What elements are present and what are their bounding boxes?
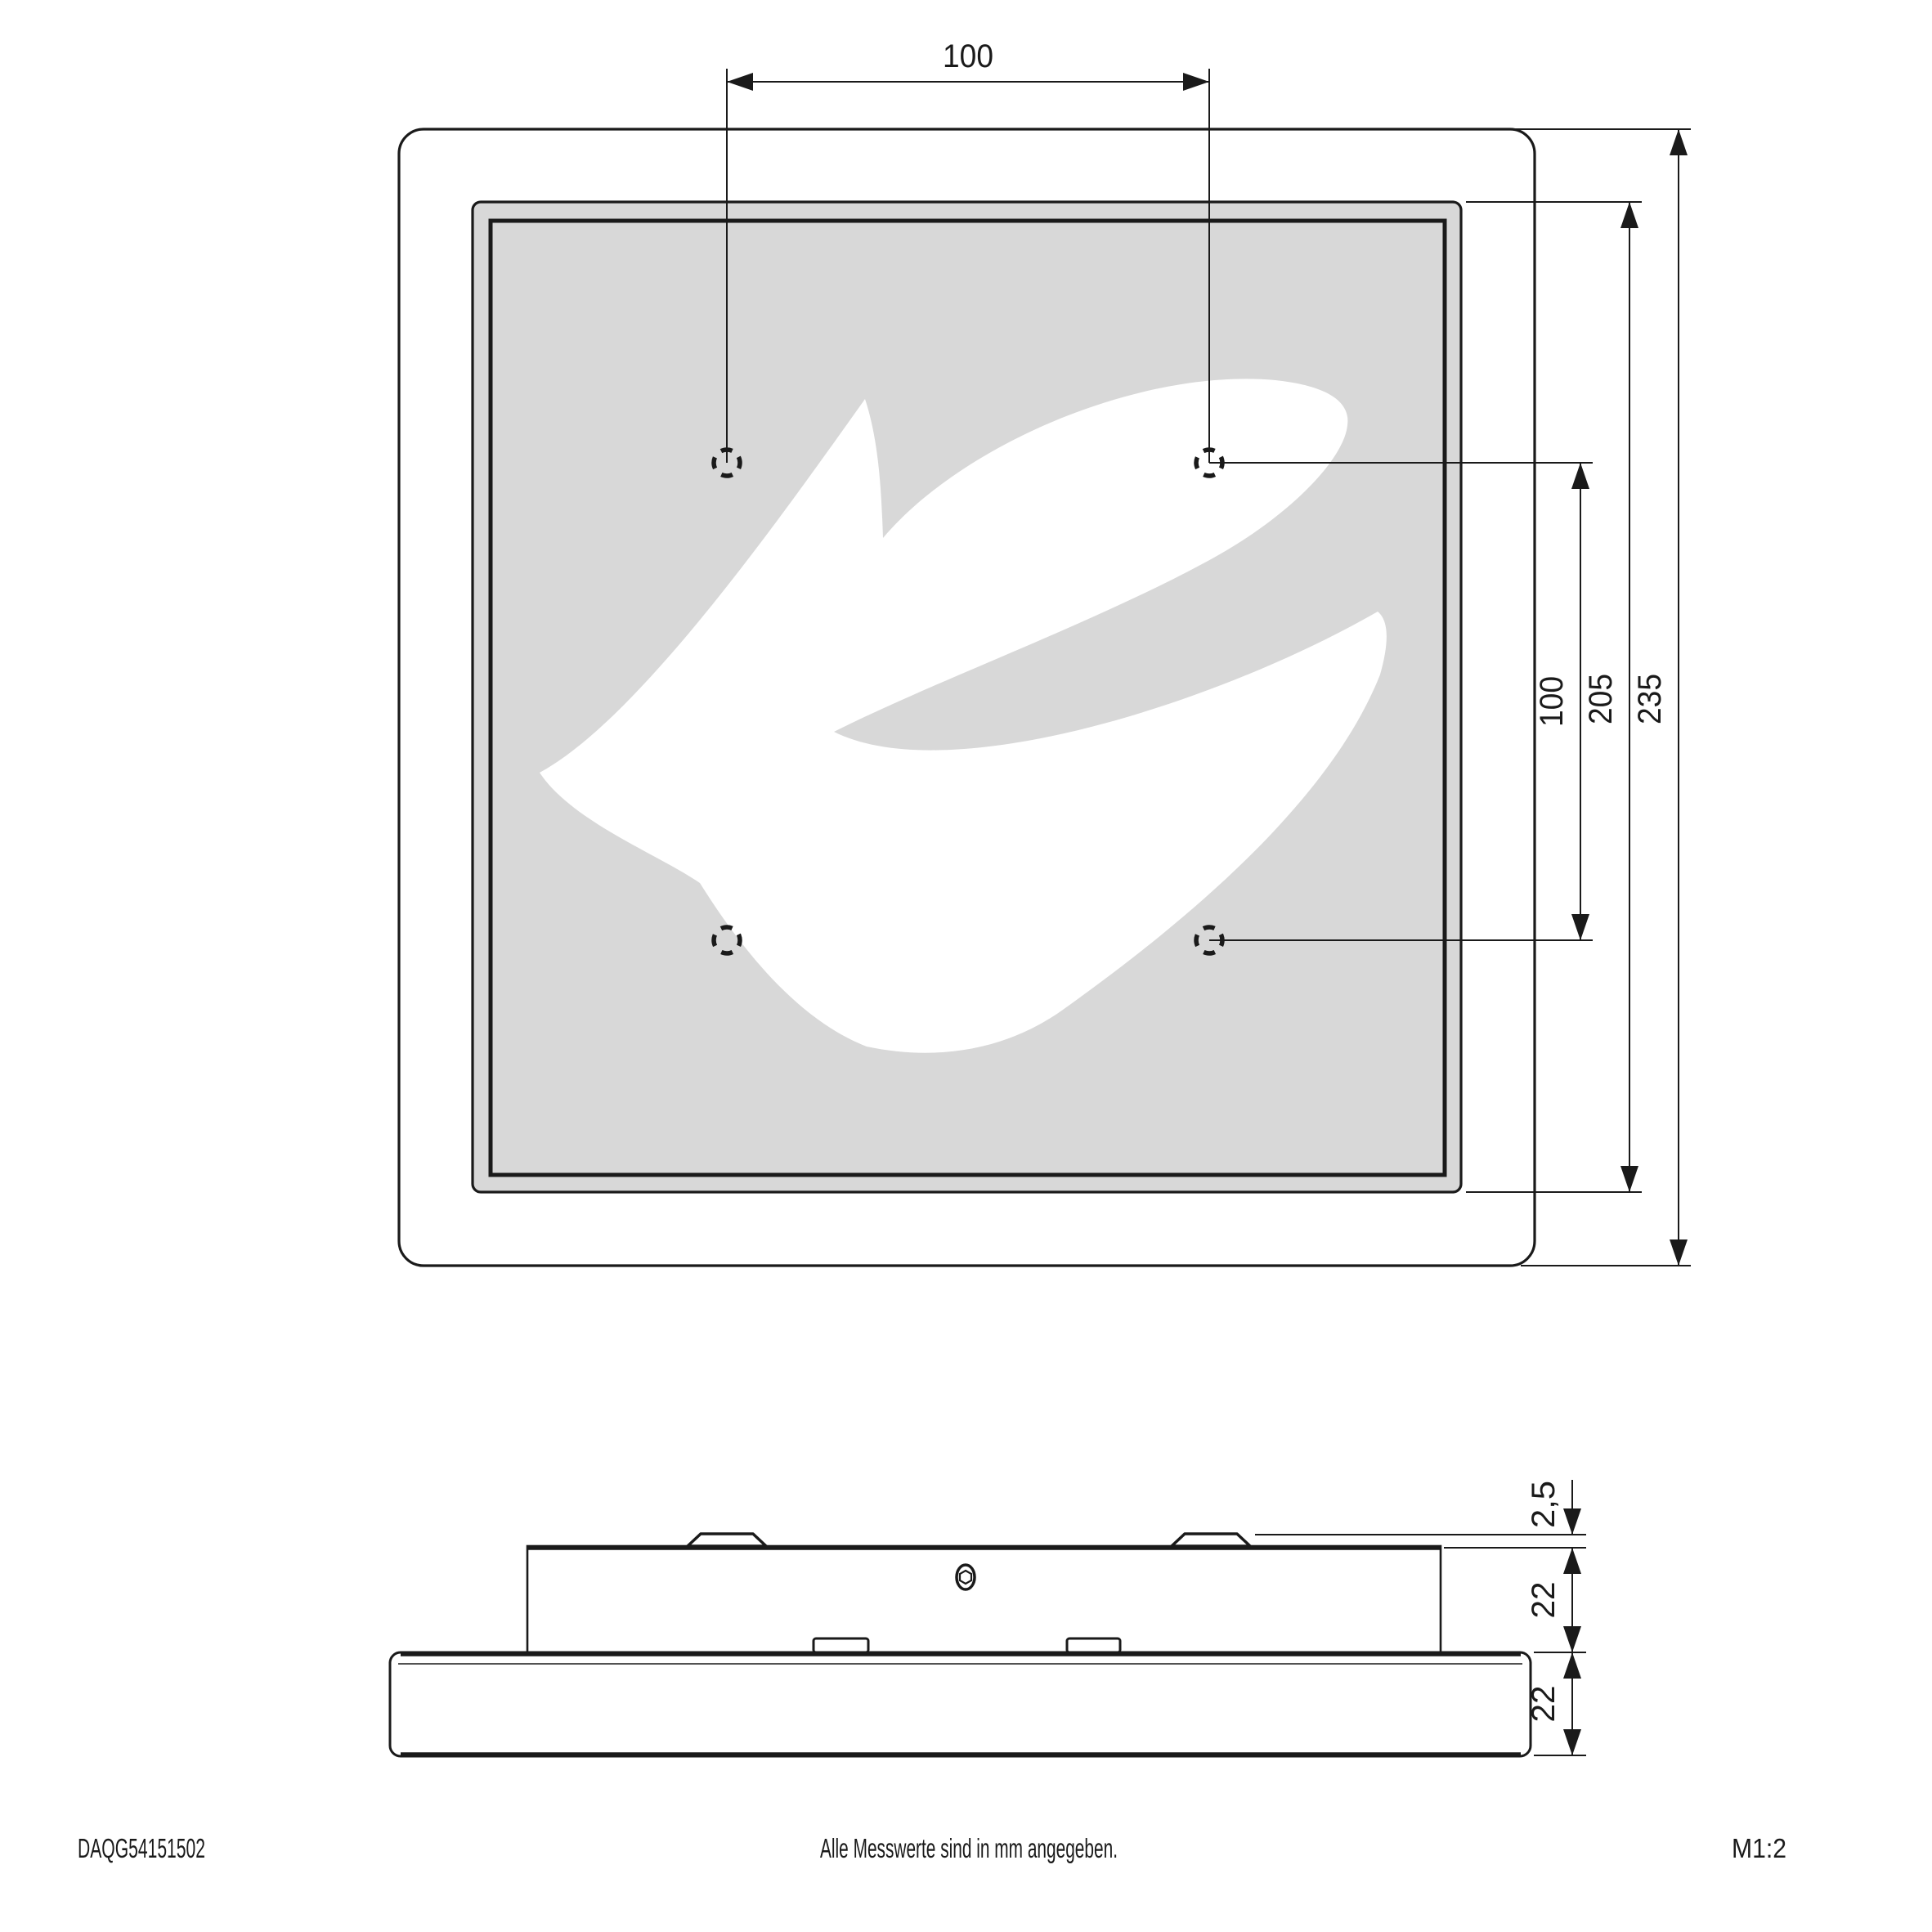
latch-tab-left (814, 1638, 868, 1652)
measurement-note: Alle Messwerte sind in mm angegeben. (820, 1833, 1118, 1863)
mounting-clip-right (1172, 1534, 1250, 1546)
arrow-down (1563, 1729, 1581, 1755)
arrow-up (1563, 1548, 1581, 1574)
panel-profile (390, 1652, 1531, 1756)
arrow-down (1563, 1508, 1581, 1535)
arrow-up (1571, 463, 1589, 489)
technical-drawing: 100 100 205 235 (0, 0, 1932, 1932)
arrow-down (1571, 914, 1589, 940)
arrow-up (1620, 202, 1638, 228)
mounting-clip-left (688, 1534, 766, 1546)
arrow-up (1670, 129, 1688, 155)
arrow-down (1670, 1239, 1688, 1266)
drawing-scale: M1:2 (1732, 1833, 1786, 1863)
dim-value: 235 (1632, 674, 1668, 724)
title-block: DAQG54151502 Alle Messwerte sind in mm a… (78, 1833, 1786, 1863)
dim-value: 2,5 (1526, 1481, 1562, 1528)
arrow-right (1183, 73, 1209, 91)
dim-side-housing-height: 22 (1526, 1548, 1586, 1652)
dim-side-panel-thickness: 22 (1526, 1652, 1586, 1755)
dim-value: 22 (1526, 1686, 1562, 1723)
side-view (390, 1534, 1531, 1756)
arrow-up (1563, 1652, 1581, 1679)
dim-side-clip-height: 2,5 (1255, 1480, 1586, 1548)
dim-value: 100 (943, 38, 993, 74)
arrow-down (1563, 1626, 1581, 1652)
arrow-left (727, 73, 753, 91)
drawing-sheet: 100 100 205 235 (0, 0, 1932, 1932)
latch-tab-right (1067, 1638, 1120, 1652)
dim-value: 22 (1526, 1582, 1562, 1619)
arrow-down (1620, 1166, 1638, 1192)
dim-value: 205 (1583, 674, 1619, 724)
front-view (399, 129, 1535, 1266)
part-number: DAQG54151502 (78, 1833, 205, 1863)
dim-value: 100 (1534, 676, 1570, 727)
housing-box (527, 1546, 1441, 1652)
